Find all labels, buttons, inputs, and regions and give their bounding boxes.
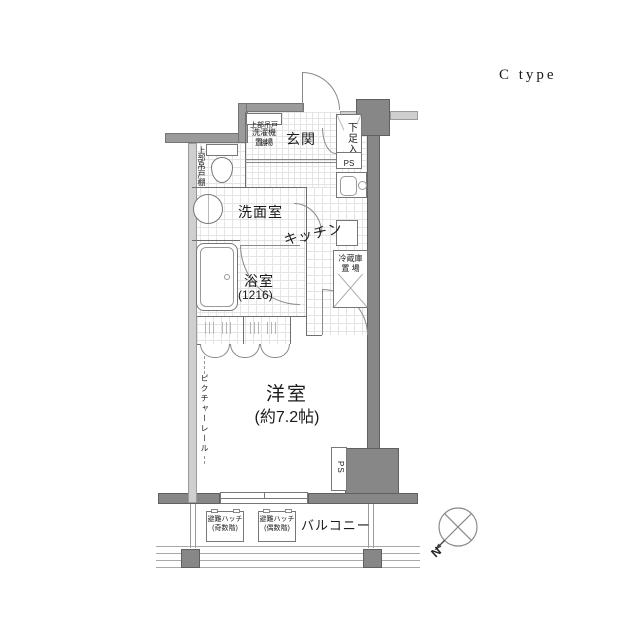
balcony-post-left <box>181 549 200 568</box>
washing-machine-label: 洗濯機 置 場 <box>246 128 282 148</box>
washroom-label: 洗面室 <box>238 204 283 222</box>
upper-cabinet-left-label: 上部吊戸棚 <box>196 146 206 186</box>
evacuation-hatch-odd: 避難ハッチ (奇数階) <box>206 511 244 542</box>
shoe-cabinet-label: 下足入 <box>344 122 357 155</box>
fridge-space-cross-icon <box>334 269 367 307</box>
kitchen-sink-unit <box>336 172 367 198</box>
closet-hanger-mark <box>222 322 232 334</box>
main-room-size-label: (約7.2帖) <box>227 408 347 428</box>
wall-right <box>367 135 380 450</box>
wall-top <box>246 103 304 112</box>
entrance-door-arc <box>302 72 340 110</box>
closet-folding-door-arc <box>230 344 260 358</box>
bathroom-size-label: (1216) <box>238 288 273 303</box>
balcony-label: バルコニー <box>301 518 371 534</box>
hatch-tab <box>285 509 292 513</box>
pipe-shaft-upper: PS <box>336 152 362 169</box>
entrance-step-line <box>245 159 338 163</box>
hatch-tab <box>263 509 270 513</box>
partition-closet-right <box>290 316 291 344</box>
balcony-post-right <box>363 549 382 568</box>
wall-left <box>188 143 197 503</box>
floor-plan-canvas: C type 下足入 <box>0 0 640 640</box>
plan-type-title: C type <box>499 67 557 84</box>
wall-right-stub <box>390 111 418 120</box>
closet-hanger-mark <box>205 322 215 334</box>
sliding-window-tick <box>264 493 265 499</box>
evacuation-hatch-odd-label: 避難ハッチ (奇数階) <box>207 516 243 534</box>
compass-north-label: N <box>428 544 444 560</box>
fridge-space-label: 冷蔵庫 置 場 <box>334 254 367 274</box>
entrance-label: 玄関 <box>286 131 316 149</box>
partition-bathroom-top-left <box>192 240 240 241</box>
main-room-label: 洋室 <box>227 383 347 407</box>
evacuation-hatch-even-label: 避難ハッチ (偶数階) <box>259 516 295 534</box>
closet-hanger-mark <box>250 322 260 334</box>
sliding-window <box>220 492 308 504</box>
closet-hanger-mark <box>267 322 277 334</box>
hatch-tab <box>211 509 218 513</box>
room-door-leaf <box>322 289 323 335</box>
partition-room-top-stub <box>306 335 322 336</box>
fridge-space-box: 冷蔵庫 置 場 <box>333 250 368 308</box>
pipe-shaft-lower: PS <box>331 447 347 491</box>
picture-rail-label: ピクチャーレール <box>199 374 209 454</box>
upper-cabinet-top-box: 上部吊戸棚 <box>246 113 282 125</box>
washbasin-icon <box>193 194 223 224</box>
evacuation-hatch-even: 避難ハッチ (偶数階) <box>258 511 296 542</box>
bathtub-icon <box>196 243 238 311</box>
toilet-tank <box>206 144 238 156</box>
pillar-bottom-right <box>345 448 399 494</box>
pipe-shaft-lower-label: PS <box>335 461 345 474</box>
kitchen-burner-icon <box>358 181 367 190</box>
partition-washroom-top <box>192 187 306 188</box>
kitchen-sink-icon <box>340 176 357 196</box>
washbasin-divider <box>208 195 209 223</box>
partition-closet-divider <box>243 316 244 344</box>
compass-icon: N <box>428 497 492 561</box>
pipe-shaft-upper-label: PS <box>344 159 355 168</box>
entrance-door-leaf <box>302 72 303 110</box>
closet-folding-door-arc <box>260 344 290 358</box>
wall-top-left <box>165 133 248 143</box>
bathtub-drain-icon <box>224 274 230 280</box>
hatch-tab <box>233 509 240 513</box>
wall-bottom-right <box>308 493 418 504</box>
balcony-strut-left <box>190 504 196 548</box>
